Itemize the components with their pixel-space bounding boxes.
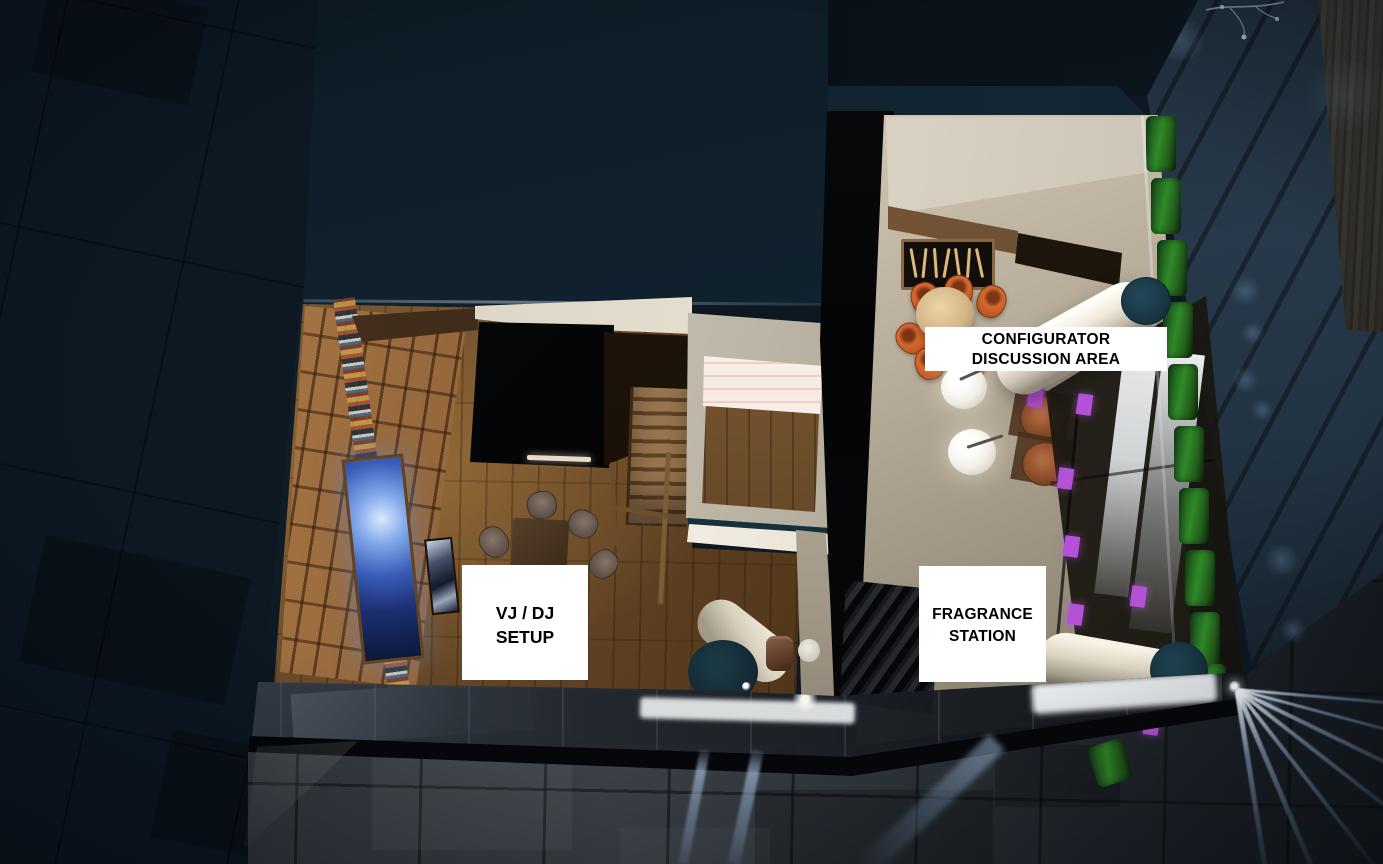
light-reflection <box>1228 276 1262 306</box>
label-line: CONFIGURATOR <box>925 330 1167 350</box>
night-render-scene: CONFIGURATOR DISCUSSION AREA VJ / DJ SET… <box>0 0 1383 864</box>
branch-decoration <box>1200 0 1290 44</box>
light-reflection <box>1240 322 1266 344</box>
label-fragrance-station: FRAGRANCE STATION <box>919 566 1046 682</box>
green-planter <box>1151 178 1181 234</box>
hanger <box>933 248 938 278</box>
light-reflection <box>1278 618 1308 642</box>
saddle-stool <box>766 636 793 671</box>
column-top <box>1121 277 1171 325</box>
hanger <box>966 248 971 278</box>
label-vj-dj-setup: VJ / DJ SETUP <box>462 565 588 680</box>
sphere-lamp <box>948 429 996 475</box>
specular-highlight <box>742 682 751 691</box>
label-line: SETUP <box>462 625 588 649</box>
hanger <box>921 248 927 278</box>
light-reflection <box>1300 60 1383 130</box>
label-line: STATION <box>919 626 1046 648</box>
purple-price-tag <box>1130 585 1148 608</box>
green-planter <box>1146 116 1176 172</box>
hanger <box>909 248 917 278</box>
hanger <box>942 248 950 278</box>
hanger <box>975 248 984 278</box>
purple-price-tag <box>1067 603 1085 626</box>
light-reflection <box>1262 545 1302 575</box>
light-reflection <box>1230 368 1260 392</box>
light-reflection <box>1250 400 1274 420</box>
purple-price-tag <box>1063 535 1081 558</box>
label-configurator-discussion-area: CONFIGURATOR DISCUSSION AREA <box>925 327 1167 371</box>
pavement-tile-light <box>372 758 572 850</box>
green-planter <box>1185 550 1215 606</box>
purple-price-tag <box>1057 467 1075 490</box>
label-line: VJ / DJ <box>462 601 588 625</box>
purple-price-tag <box>1076 393 1094 416</box>
green-planter <box>1168 364 1198 420</box>
green-planter <box>1174 426 1204 482</box>
spotlight-source <box>1229 681 1241 693</box>
label-line: FRAGRANCE <box>919 604 1046 626</box>
round-stool-white <box>798 639 820 662</box>
hanger <box>954 248 961 278</box>
pavement-tile-light <box>620 828 770 864</box>
staircase <box>626 387 692 527</box>
label-line: DISCUSSION AREA <box>925 350 1167 370</box>
green-planter <box>1179 488 1209 544</box>
meeting-table <box>511 518 570 571</box>
